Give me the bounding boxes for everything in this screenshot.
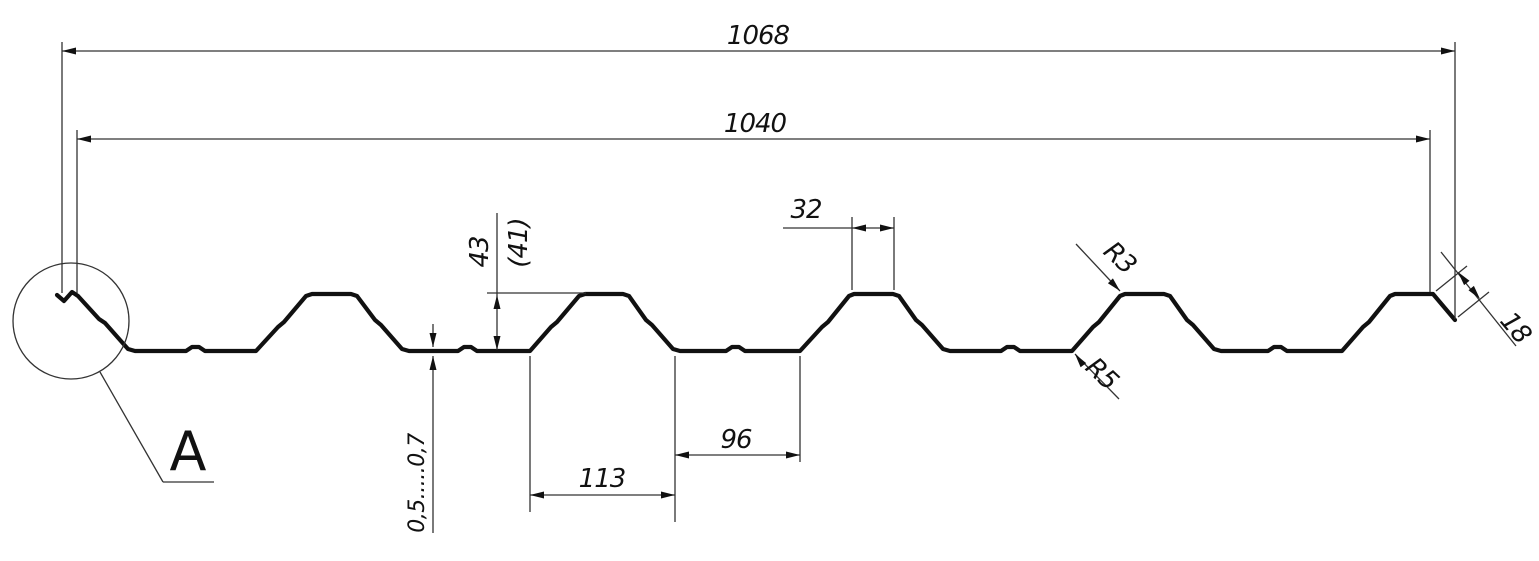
rib-base-width-label: 113 — [579, 464, 626, 494]
leader-line — [100, 372, 163, 482]
arrowhead-right — [1441, 48, 1455, 55]
arrowhead-left — [675, 452, 689, 459]
valley-width-label: 96 — [720, 425, 752, 455]
arrowhead-right — [880, 225, 894, 232]
dim-rib-top-width: 32 — [783, 195, 894, 290]
detail-label: A — [170, 420, 207, 483]
arrowhead-right — [786, 452, 800, 459]
detail-circle — [13, 263, 129, 379]
arrowhead-left — [852, 225, 866, 232]
cover-width-label: 1040 — [724, 109, 787, 139]
dim-rib-base-width: 113 — [530, 356, 675, 522]
arrowhead-right — [1416, 136, 1430, 143]
arrowhead-upper — [1458, 272, 1470, 285]
edge-lip-label: 18 — [1494, 306, 1537, 349]
arrowhead-down — [494, 336, 501, 350]
arrowhead-right — [661, 492, 675, 499]
dim-valley-width: 96 — [675, 356, 800, 462]
profile-height-alt-label: (41) — [504, 218, 534, 267]
sheet-profile-outline — [57, 292, 1455, 351]
callout-bottom-radius: R5 — [1075, 352, 1124, 399]
profile-height-label: 43 — [465, 236, 495, 267]
detail-callout-a: A — [13, 263, 214, 483]
arrowhead-up — [430, 356, 437, 370]
drawing-svg: 1068 1040 32 43 (41) 0,5.....0,7 — [0, 0, 1539, 561]
callout-top-radius: R3 — [1076, 236, 1142, 291]
arrowhead-left — [77, 136, 91, 143]
technical-drawing-profiled-sheet: 1068 1040 32 43 (41) 0,5.....0,7 — [0, 0, 1539, 561]
arrowhead — [1075, 354, 1086, 367]
rib-top-width-label: 32 — [790, 195, 821, 225]
dim-edge-lip: 18 — [1436, 252, 1537, 350]
bottom-radius-label: R5 — [1079, 352, 1124, 396]
arrowhead-up — [494, 295, 501, 309]
ext-line — [1458, 292, 1489, 317]
dim-cover-width: 1040 — [77, 109, 1430, 293]
arrowhead-left — [62, 48, 76, 55]
arrowhead-down — [430, 333, 437, 347]
dim-sheet-thickness: 0,5.....0,7 — [405, 324, 437, 533]
arrowhead-left — [530, 492, 544, 499]
overall-width-label: 1068 — [727, 21, 790, 51]
dim-profile-height: 43 (41) — [465, 213, 586, 350]
dim-overall-width: 1068 — [62, 21, 1455, 319]
sheet-thickness-label: 0,5.....0,7 — [405, 433, 430, 533]
